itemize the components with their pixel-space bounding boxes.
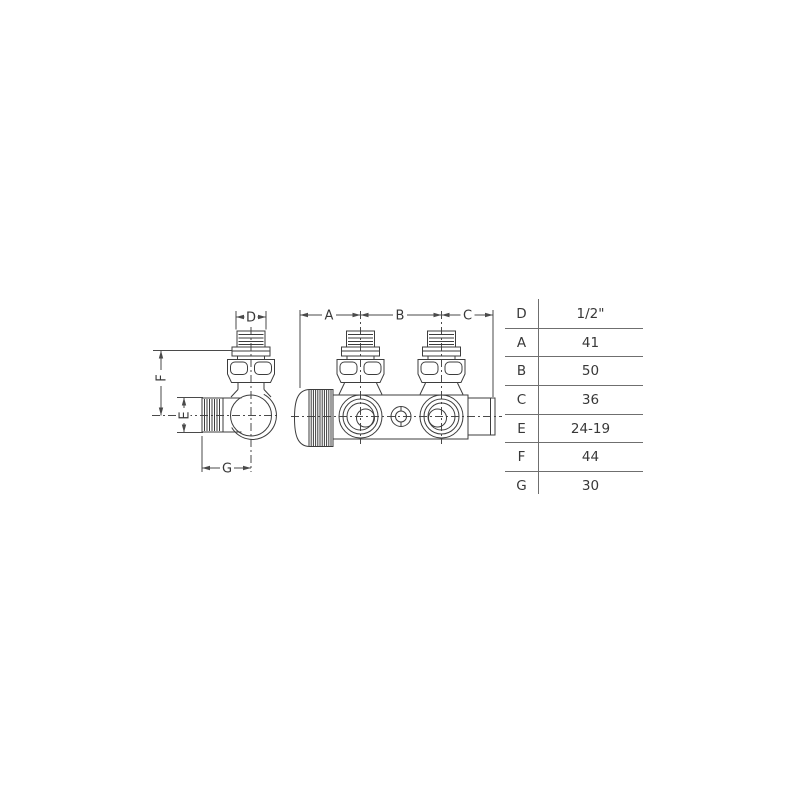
side-view [202, 331, 276, 439]
dim-d: D [236, 311, 266, 330]
row-label: F [505, 449, 538, 465]
row-value: 30 [538, 478, 643, 494]
row-label: B [505, 363, 538, 379]
table-row: C 36 [505, 386, 643, 415]
dim-label-d: D [246, 311, 256, 326]
dim-abc: A B C [300, 309, 493, 398]
dim-label-e: E [178, 411, 193, 419]
row-label: A [505, 335, 538, 351]
dim-label-a: A [325, 309, 334, 324]
dim-label-b: B [396, 309, 405, 324]
row-value: 24-19 [538, 421, 643, 437]
dim-label-g: G [222, 462, 232, 477]
row-value: 44 [538, 449, 643, 465]
table-row: E 24-19 [505, 415, 643, 444]
dim-g: G [202, 436, 251, 477]
knurled-cap [295, 390, 334, 447]
dim-label-c: C [463, 309, 472, 324]
row-value: 1/2" [538, 306, 643, 322]
row-value: 50 [538, 363, 643, 379]
dimension-table: D 1/2" A 41 B 50 C 36 E 24-19 F 44 G 30 [505, 300, 643, 500]
front-view [295, 331, 496, 447]
table-row: B 50 [505, 357, 643, 386]
row-label: D [505, 306, 538, 322]
connector-chamfers [339, 383, 463, 395]
table-row: A 41 [505, 329, 643, 358]
row-label: E [505, 421, 538, 437]
table-row: G 30 [505, 472, 643, 500]
row-label: C [505, 392, 538, 408]
valve-dimension-sheet: D A B C F [0, 0, 800, 800]
row-label: G [505, 478, 538, 494]
row-value: 36 [538, 392, 643, 408]
table-row: D 1/2" [505, 300, 643, 329]
dim-label-f: F [155, 374, 170, 381]
valve-technical-drawing: D A B C F [0, 0, 800, 800]
row-value: 41 [538, 335, 643, 351]
table-divider [538, 299, 539, 494]
valve-body-outer-arc [232, 394, 277, 439]
dim-e: E [177, 398, 203, 433]
table-row: F 44 [505, 443, 643, 472]
